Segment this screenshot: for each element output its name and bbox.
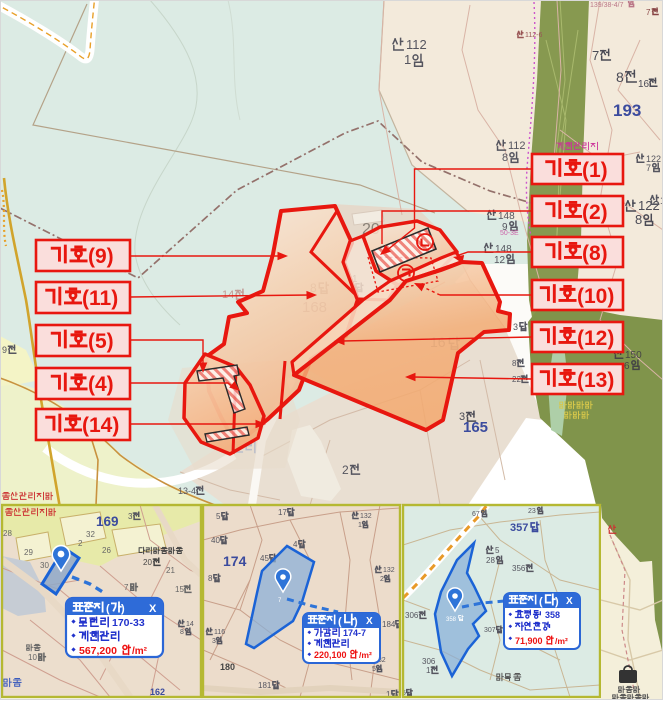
svg-text:358: 358 [446, 617, 457, 623]
svg-text:(5): (5) [88, 330, 114, 353]
svg-text:8: 8 [635, 212, 642, 227]
svg-text:1: 1 [426, 666, 431, 675]
svg-text:306: 306 [422, 657, 436, 666]
svg-text:(: ( [106, 603, 110, 615]
svg-text:): ) [121, 603, 125, 615]
svg-text:8: 8 [502, 152, 508, 164]
svg-text:(10): (10) [577, 285, 614, 308]
svg-text:17: 17 [278, 508, 287, 517]
svg-text:(9): (9) [88, 245, 114, 268]
svg-text:307: 307 [484, 627, 496, 634]
svg-text:23: 23 [528, 508, 536, 515]
svg-text:180: 180 [220, 662, 235, 672]
svg-text:5: 5 [216, 512, 221, 521]
svg-text:1: 1 [404, 52, 411, 67]
svg-text:): ) [555, 596, 559, 608]
svg-text:29: 29 [24, 548, 33, 557]
svg-text:9: 9 [2, 345, 7, 355]
svg-text:174-7: 174-7 [343, 628, 366, 638]
svg-text:7: 7 [124, 583, 129, 592]
svg-text:139/38-4/7: 139/38-4/7 [590, 2, 624, 9]
svg-text:20: 20 [143, 558, 152, 567]
svg-text:X: X [566, 596, 573, 607]
svg-text:148: 148 [495, 244, 512, 255]
svg-text:169: 169 [96, 514, 119, 529]
svg-text:15: 15 [175, 585, 184, 594]
svg-text:(1): (1) [582, 159, 608, 182]
svg-text:): ) [354, 616, 358, 628]
svg-text:/m²: /m² [555, 636, 568, 646]
svg-text:8: 8 [616, 69, 624, 85]
svg-text:30: 30 [40, 561, 49, 570]
svg-text:(11): (11) [82, 287, 118, 310]
svg-text:(14): (14) [82, 414, 119, 437]
svg-text:193: 193 [613, 101, 641, 120]
svg-text:2: 2 [78, 539, 83, 548]
svg-text:(4): (4) [88, 373, 114, 396]
svg-text:67: 67 [472, 511, 480, 518]
svg-text:45: 45 [260, 554, 269, 563]
svg-text:71,900: 71,900 [515, 636, 543, 646]
svg-text:174: 174 [223, 553, 247, 569]
svg-text:116: 116 [214, 629, 225, 636]
svg-text:14: 14 [222, 289, 234, 301]
svg-text:112-6: 112-6 [525, 32, 542, 39]
svg-text:3: 3 [128, 512, 133, 521]
svg-text:358: 358 [545, 610, 560, 620]
svg-text:13-4: 13-4 [178, 486, 196, 496]
svg-text:5: 5 [495, 546, 500, 555]
svg-text:8: 8 [512, 359, 517, 368]
svg-text:1: 1 [358, 522, 362, 529]
svg-text:4: 4 [293, 540, 298, 549]
svg-text:21: 21 [166, 566, 175, 575]
svg-text:5: 5 [372, 666, 376, 673]
svg-text:112: 112 [508, 140, 526, 152]
svg-text:356: 356 [512, 564, 526, 573]
svg-text:X: X [366, 616, 373, 627]
svg-text:357: 357 [510, 522, 528, 534]
svg-text:6: 6 [624, 361, 630, 372]
svg-text:162: 162 [150, 687, 165, 697]
svg-text:8: 8 [208, 574, 213, 583]
svg-text:132: 132 [360, 513, 372, 520]
svg-text:220,100: 220,100 [314, 650, 347, 660]
svg-text:184: 184 [382, 620, 396, 629]
svg-text:32: 32 [86, 530, 95, 539]
svg-text:(: ( [539, 596, 543, 608]
svg-text:40: 40 [211, 536, 220, 545]
svg-text:165: 165 [463, 419, 488, 436]
svg-text:148: 148 [498, 211, 515, 222]
svg-text:181: 181 [258, 681, 272, 690]
svg-text:16: 16 [638, 79, 650, 90]
svg-text:170-33: 170-33 [112, 617, 145, 629]
svg-text:(12): (12) [577, 327, 614, 350]
svg-text:X: X [149, 603, 157, 615]
svg-text:(2): (2) [582, 201, 608, 224]
svg-text:132: 132 [383, 567, 395, 574]
svg-text:14: 14 [186, 621, 194, 628]
svg-text:10: 10 [28, 653, 37, 662]
svg-text:306: 306 [405, 611, 419, 620]
svg-text:2: 2 [342, 463, 349, 477]
svg-text:(8): (8) [582, 242, 608, 265]
svg-text:26: 26 [102, 546, 111, 555]
svg-text:112: 112 [406, 37, 427, 52]
svg-text:7: 7 [592, 48, 599, 63]
svg-text:7: 7 [646, 8, 651, 17]
svg-text:(: ( [338, 616, 342, 628]
svg-text:12: 12 [494, 255, 506, 266]
svg-text:8: 8 [180, 629, 184, 636]
svg-text:50-3E: 50-3E [500, 230, 519, 237]
svg-text:2: 2 [380, 576, 384, 583]
svg-text:22: 22 [512, 375, 521, 384]
svg-text:150: 150 [625, 350, 642, 361]
svg-text:(13): (13) [577, 369, 614, 392]
svg-text:28: 28 [486, 556, 495, 565]
svg-text:567,200: 567,200 [79, 645, 117, 657]
svg-text:7: 7 [646, 163, 651, 173]
svg-text:28: 28 [3, 529, 12, 538]
svg-text:/m²: /m² [132, 646, 148, 657]
svg-text:3: 3 [212, 638, 216, 645]
svg-text:3: 3 [513, 322, 518, 332]
svg-text:/m²: /m² [359, 650, 372, 660]
